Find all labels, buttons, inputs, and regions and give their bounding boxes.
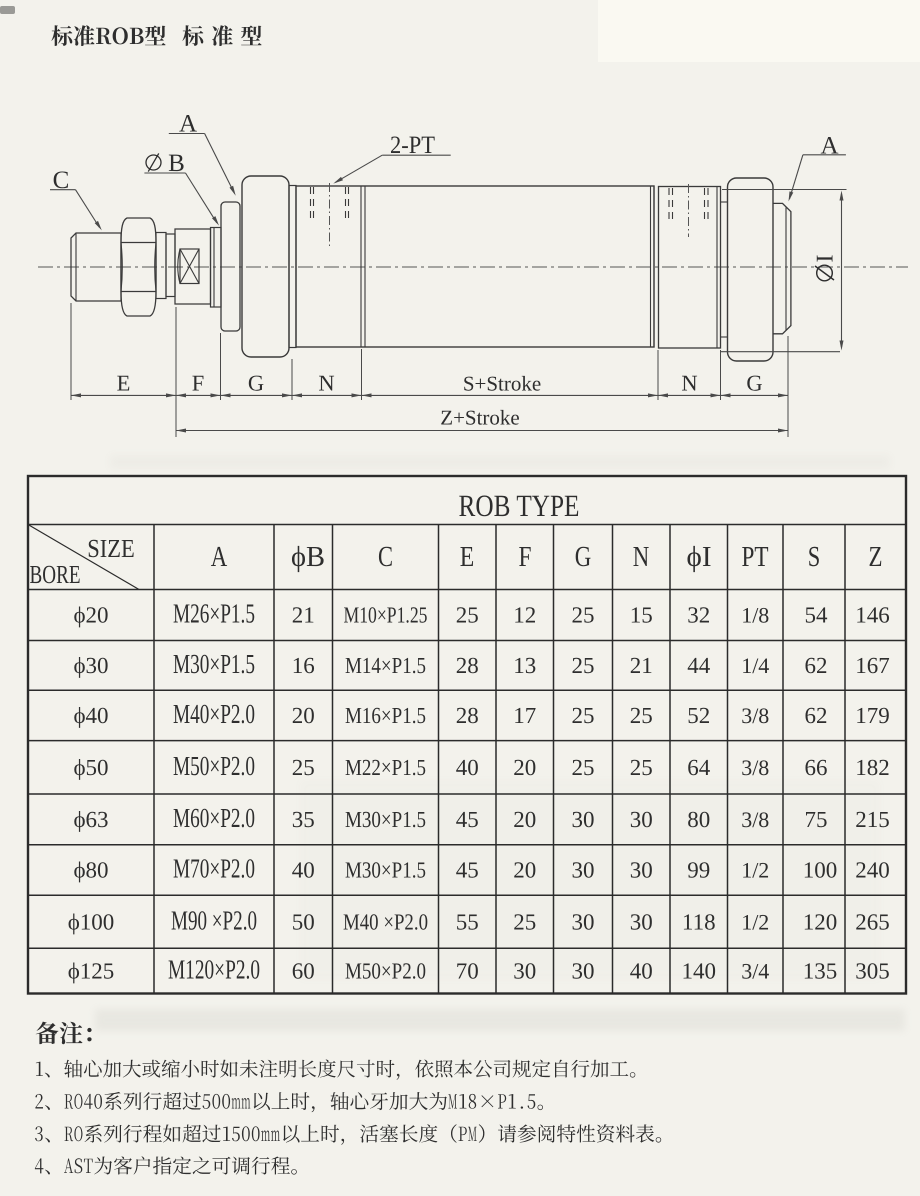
svg-text:1/4: 1/4 [741,653,769,678]
svg-text:3/4: 3/4 [741,958,769,983]
svg-text:20: 20 [513,807,536,832]
svg-text:30: 30 [572,958,595,983]
svg-text:60: 60 [292,958,315,983]
svg-text:M30×P1.5: M30×P1.5 [345,858,426,883]
svg-text:16: 16 [292,653,315,678]
svg-text:C: C [378,541,393,573]
svg-text:40: 40 [456,755,479,780]
svg-text:ϕ50: ϕ50 [73,755,108,780]
svg-text:30: 30 [630,807,653,832]
svg-text:28: 28 [456,653,479,678]
svg-text:40: 40 [630,958,653,983]
svg-text:45: 45 [456,858,479,883]
svg-text:118: 118 [682,909,716,934]
svg-text:265: 265 [855,909,890,934]
svg-text:12: 12 [513,603,536,628]
svg-text:M50×P2.0: M50×P2.0 [345,958,426,983]
svg-text:ϕ63: ϕ63 [73,807,108,832]
svg-text:30: 30 [513,958,536,983]
svg-text:20: 20 [513,858,536,883]
svg-text:M40 ×P2.0: M40 ×P2.0 [343,909,428,934]
svg-text:17: 17 [513,703,536,728]
svg-text:I: I [813,255,839,263]
svg-text:M30×P1.5: M30×P1.5 [173,648,255,679]
svg-text:30: 30 [630,909,653,934]
svg-text:70: 70 [456,958,479,983]
svg-text:25: 25 [456,603,479,628]
svg-text:Z+Stroke: Z+Stroke [440,406,520,430]
svg-text:167: 167 [855,653,890,678]
svg-text:28: 28 [456,703,479,728]
svg-text:40: 40 [292,858,315,883]
svg-text:1/2: 1/2 [741,858,769,883]
svg-text:N: N [681,371,697,396]
svg-text:ϕ30: ϕ30 [73,653,108,678]
svg-text:182: 182 [855,755,890,780]
svg-text:120: 120 [803,909,838,934]
svg-text:135: 135 [803,958,838,983]
svg-text:80: 80 [687,807,710,832]
svg-text:M50×P2.0: M50×P2.0 [173,750,255,781]
svg-text:ϕ100: ϕ100 [68,909,115,934]
svg-text:30: 30 [630,858,653,883]
svg-text:ROB TYPE: ROB TYPE [459,488,580,523]
svg-text:M16×P1.5: M16×P1.5 [345,703,426,728]
svg-text:M14×P1.5: M14×P1.5 [345,653,426,678]
svg-text:30: 30 [572,909,595,934]
svg-text:20: 20 [513,755,536,780]
svg-text:21: 21 [630,653,653,678]
svg-text:25: 25 [630,755,653,780]
svg-text:Z: Z [869,541,883,573]
svg-text:54: 54 [805,603,829,628]
svg-text:305: 305 [855,958,890,983]
svg-text:F: F [519,541,532,573]
svg-text:M120×P2.0: M120×P2.0 [168,953,260,984]
svg-text:ϕ40: ϕ40 [73,703,108,728]
svg-text:M26×P1.5: M26×P1.5 [173,598,255,629]
svg-text:S+Stroke: S+Stroke [463,372,541,396]
svg-text:S: S [808,541,821,573]
svg-text:64: 64 [687,755,711,780]
svg-text:N: N [633,541,650,573]
svg-text:E: E [117,371,131,396]
svg-text:62: 62 [805,653,828,678]
svg-text:30: 30 [572,807,595,832]
svg-text:66: 66 [805,755,828,780]
svg-text:SIZE: SIZE [87,534,135,563]
svg-text:3/8: 3/8 [741,703,769,728]
svg-text:ϕ125: ϕ125 [68,958,115,983]
svg-text:52: 52 [687,703,710,728]
svg-text:44: 44 [687,653,711,678]
svg-text:13: 13 [513,653,536,678]
svg-text:20: 20 [292,703,315,728]
svg-text:240: 240 [855,858,890,883]
svg-text:G: G [248,371,264,396]
svg-text:M30×P1.5: M30×P1.5 [345,807,426,832]
svg-text:E: E [460,541,475,573]
svg-text:ϕ20: ϕ20 [73,603,108,628]
svg-text:25: 25 [292,755,315,780]
svg-text:45: 45 [456,807,479,832]
svg-text:N: N [318,371,334,396]
svg-text:3/8: 3/8 [741,807,769,832]
svg-text:A: A [820,133,838,160]
svg-text:ϕB: ϕB [291,541,325,573]
svg-text:30: 30 [572,858,595,883]
svg-text:1/2: 1/2 [741,909,769,934]
svg-text:15: 15 [630,603,653,628]
svg-text:25: 25 [572,653,595,678]
svg-text:3/8: 3/8 [741,755,769,780]
svg-text:G: G [746,371,762,396]
svg-text:146: 146 [855,603,890,628]
svg-text:M70×P2.0: M70×P2.0 [173,853,255,884]
svg-text:BORE: BORE [30,560,81,589]
svg-text:A: A [211,541,228,573]
svg-text:1/8: 1/8 [741,603,769,628]
svg-text:75: 75 [805,807,828,832]
svg-text:50: 50 [292,909,315,934]
svg-text:179: 179 [855,703,890,728]
svg-text:21: 21 [292,603,315,628]
svg-text:M60×P2.0: M60×P2.0 [173,802,255,833]
svg-text:215: 215 [855,807,890,832]
svg-text:M10×P1.25: M10×P1.25 [344,603,428,628]
svg-text:M90 ×P2.0: M90 ×P2.0 [171,904,257,935]
svg-text:25: 25 [572,703,595,728]
svg-text:25: 25 [572,755,595,780]
svg-text:55: 55 [456,909,479,934]
svg-text:ϕ80: ϕ80 [73,858,108,883]
svg-text:140: 140 [682,958,717,983]
svg-text:F: F [192,371,205,396]
svg-text:PT: PT [742,541,769,573]
svg-text:25: 25 [513,909,536,934]
svg-text:32: 32 [687,603,710,628]
svg-text:35: 35 [292,807,315,832]
svg-text:100: 100 [803,858,838,883]
svg-text:M40×P2.0: M40×P2.0 [173,698,255,729]
svg-text:99: 99 [687,858,710,883]
svg-text:25: 25 [630,703,653,728]
svg-text:ϕI: ϕI [687,541,712,573]
svg-text:M22×P1.5: M22×P1.5 [345,755,426,780]
svg-text:62: 62 [805,703,828,728]
svg-text:G: G [575,541,592,573]
svg-text:25: 25 [572,603,595,628]
